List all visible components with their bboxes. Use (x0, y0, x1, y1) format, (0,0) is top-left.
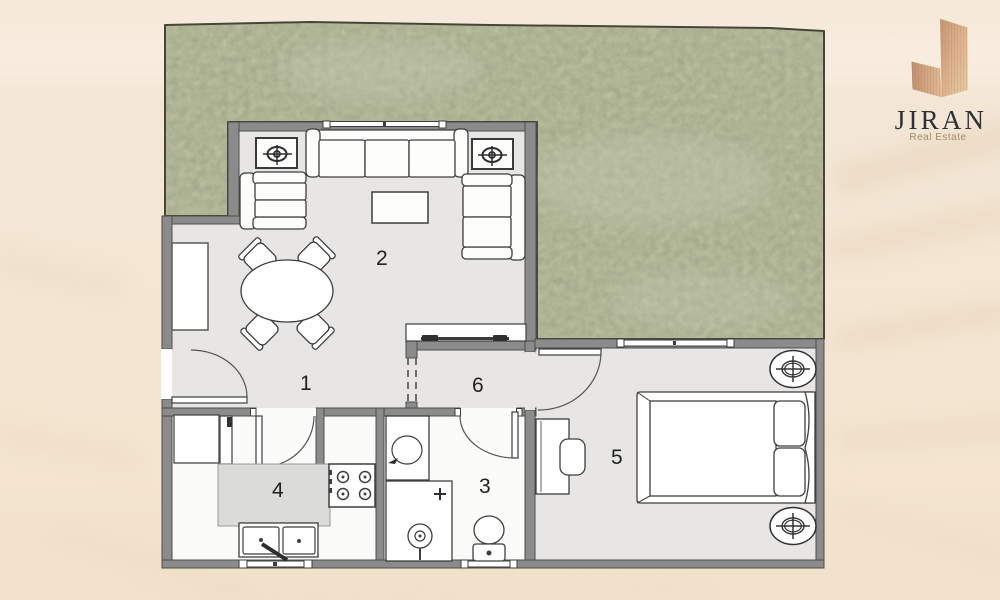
svg-text:5: 5 (611, 446, 623, 469)
svg-text:3: 3 (479, 475, 491, 498)
svg-text:Real Estate: Real Estate (909, 132, 966, 143)
svg-text:4: 4 (272, 479, 284, 502)
svg-text:1: 1 (300, 372, 312, 395)
svg-text:JIRAN: JIRAN (895, 105, 988, 135)
svg-text:6: 6 (472, 374, 484, 397)
svg-text:2: 2 (376, 247, 388, 270)
